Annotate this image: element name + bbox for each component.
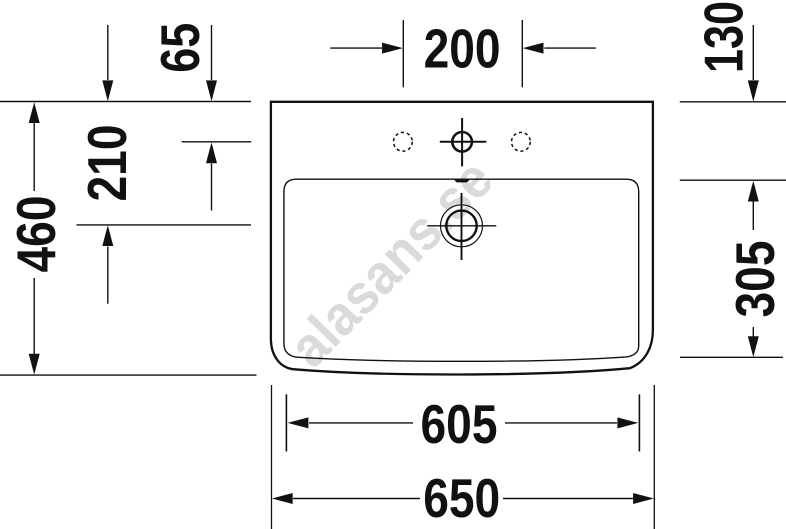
svg-text:460: 460: [6, 196, 67, 273]
svg-text:200: 200: [424, 19, 501, 80]
svg-text:65: 65: [150, 23, 211, 73]
svg-text:305: 305: [725, 241, 786, 318]
svg-text:130: 130: [694, 1, 755, 73]
svg-text:605: 605: [421, 394, 498, 455]
svg-text:650: 650: [423, 468, 500, 529]
svg-text:210: 210: [77, 125, 138, 202]
